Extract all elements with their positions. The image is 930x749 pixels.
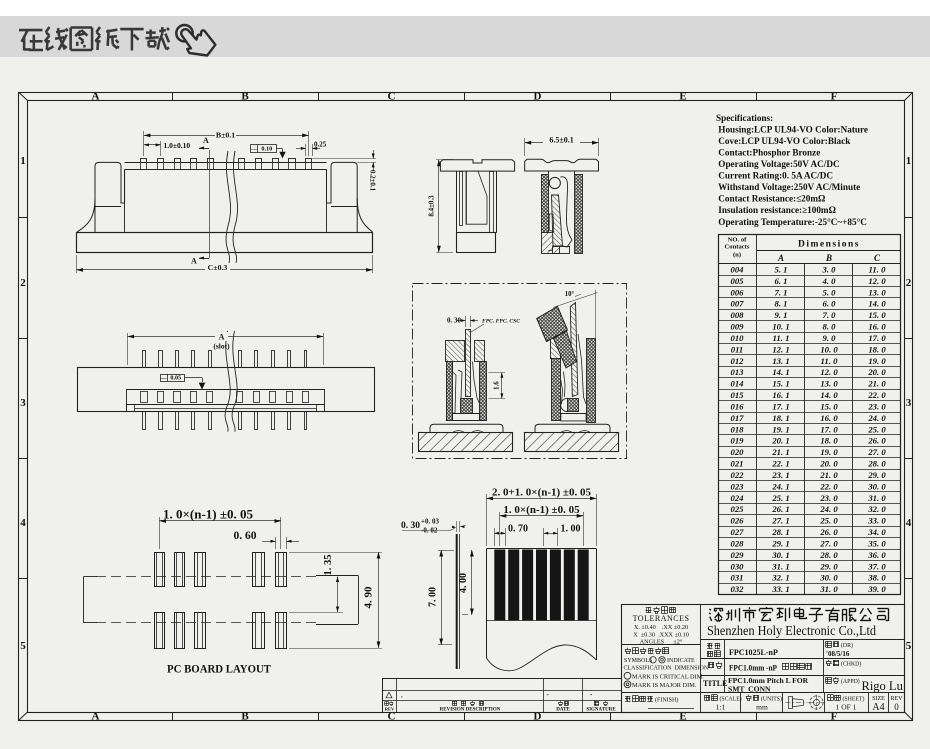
svg-text:8.4±0.3: 8.4±0.3 — [428, 195, 436, 217]
svg-text:21. 1: 21. 1 — [771, 447, 789, 457]
svg-text:MARK IS CRITICAL DIM.: MARK IS CRITICAL DIM. — [632, 674, 704, 681]
svg-text:6. 0: 6. 0 — [822, 299, 836, 309]
svg-text:—: — — [250, 147, 258, 153]
svg-text:016: 016 — [730, 401, 744, 411]
svg-text:22. 0: 22. 0 — [867, 390, 886, 400]
svg-text:4: 4 — [906, 517, 912, 529]
svg-text:27. 1: 27. 1 — [771, 516, 789, 526]
svg-text:(DR): (DR) — [841, 642, 853, 649]
svg-text:008: 008 — [730, 310, 744, 320]
svg-text:10. 1: 10. 1 — [772, 322, 789, 332]
svg-text:B: B — [241, 710, 249, 722]
svg-text:28. 0: 28. 0 — [867, 459, 886, 469]
svg-text:026: 026 — [730, 516, 744, 526]
svg-text:015: 015 — [730, 390, 744, 400]
svg-text:23. 1: 23. 1 — [771, 470, 789, 480]
svg-text:23. 0: 23. 0 — [819, 493, 838, 503]
svg-text:1 OF 1: 1 OF 1 — [836, 703, 857, 712]
svg-text:004: 004 — [730, 264, 744, 274]
svg-text:12. 0: 12. 0 — [820, 367, 838, 377]
svg-text:011: 011 — [731, 344, 744, 354]
svg-text:+0. 03: +0. 03 — [421, 518, 439, 526]
svg-text:19. 1: 19. 1 — [772, 424, 789, 434]
svg-text:029: 029 — [730, 550, 744, 560]
svg-text:5: 5 — [20, 640, 26, 652]
svg-text:14. 1: 14. 1 — [772, 367, 789, 377]
svg-text:18. 0: 18. 0 — [868, 344, 886, 354]
svg-text:19. 0: 19. 0 — [820, 447, 838, 457]
svg-text:15. 0: 15. 0 — [868, 310, 886, 320]
svg-text:3: 3 — [906, 397, 912, 409]
svg-text:17. 0: 17. 0 — [868, 333, 886, 343]
svg-text:(UNITS): (UNITS) — [761, 696, 782, 703]
svg-text:0: 0 — [894, 702, 899, 712]
svg-text:4. 90: 4. 90 — [363, 586, 375, 609]
svg-text:39. 0: 39. 0 — [867, 584, 886, 594]
svg-text:010: 010 — [730, 333, 744, 343]
svg-text:11. 0: 11. 0 — [869, 264, 887, 274]
svg-text:15. 0: 15. 0 — [820, 401, 838, 411]
svg-text:(n): (n) — [733, 252, 741, 259]
svg-text:28. 0: 28. 0 — [819, 550, 838, 560]
svg-text:1. 00: 1. 00 — [561, 524, 581, 535]
svg-text:Contact Resistance:≤20mΩ: Contact Resistance:≤20mΩ — [716, 194, 825, 204]
svg-text:5. 1: 5. 1 — [774, 264, 787, 274]
svg-text:4: 4 — [20, 517, 26, 529]
svg-text:24. 0: 24. 0 — [819, 504, 838, 514]
svg-text:10°: 10° — [565, 291, 575, 298]
svg-text:006: 006 — [730, 287, 744, 297]
svg-text:34. 0: 34. 0 — [867, 527, 886, 537]
svg-text:2: 2 — [20, 277, 26, 289]
svg-text:1. 35: 1. 35 — [323, 555, 334, 576]
svg-text:11. 1: 11. 1 — [773, 333, 790, 343]
svg-text:'08/5/16: '08/5/16 — [826, 650, 850, 658]
svg-text:3. 0: 3. 0 — [821, 264, 836, 274]
svg-text:20. 0: 20. 0 — [819, 459, 838, 469]
svg-text:Housing:LCP UL94-VO Color:Natu: Housing:LCP UL94-VO Color:Nature — [716, 124, 868, 134]
svg-text:8. 1: 8. 1 — [774, 299, 787, 309]
svg-text:17. 0: 17. 0 — [820, 424, 838, 434]
svg-text:25. 0: 25. 0 — [819, 516, 838, 526]
svg-text:11. 0: 11. 0 — [821, 356, 839, 366]
svg-text:1:1: 1:1 — [716, 703, 726, 712]
svg-text:1. 0×(n-1) ±0. 05: 1. 0×(n-1) ±0. 05 — [503, 504, 580, 516]
svg-text:36. 0: 36. 0 — [867, 550, 886, 560]
svg-text:Specifications:: Specifications: — [716, 113, 773, 123]
svg-text:22. 1: 22. 1 — [771, 459, 789, 469]
svg-text:24. 1: 24. 1 — [771, 481, 789, 491]
svg-text:9. 0: 9. 0 — [822, 333, 836, 343]
svg-text:2: 2 — [906, 277, 912, 289]
svg-text:0. 30: 0. 30 — [447, 317, 462, 325]
svg-text:13. 0: 13. 0 — [820, 379, 838, 389]
svg-text:37. 0: 37. 0 — [867, 561, 886, 571]
svg-text:014: 014 — [730, 379, 744, 389]
svg-text:18. 0: 18. 0 — [820, 436, 838, 446]
svg-text:032: 032 — [730, 584, 744, 594]
svg-text:A: A — [191, 257, 197, 266]
svg-text:Shenzhen Holy Electronic Co.,L: Shenzhen Holy Electronic Co.,Ltd — [707, 624, 876, 639]
svg-text:B: B — [241, 91, 249, 103]
svg-text:25. 0: 25. 0 — [867, 424, 886, 434]
svg-text:21. 0: 21. 0 — [819, 470, 838, 480]
svg-text:Contacts: Contacts — [725, 244, 750, 251]
svg-text:031: 031 — [730, 573, 743, 583]
svg-text:PC BOARD LAYOUT: PC BOARD LAYOUT — [167, 664, 271, 676]
svg-text:FPC1.0mm -nP: FPC1.0mm -nP — [729, 664, 777, 673]
svg-text:TITLE: TITLE — [703, 679, 727, 688]
svg-text:B±0.1: B±0.1 — [216, 131, 235, 140]
svg-text:12. 1: 12. 1 — [772, 344, 789, 354]
svg-text:30. 1: 30. 1 — [771, 550, 789, 560]
svg-text:A: A — [92, 91, 100, 103]
svg-text:20. 1: 20. 1 — [771, 436, 789, 446]
svg-text:9. 1: 9. 1 — [774, 310, 787, 320]
svg-text:14. 0: 14. 0 — [820, 390, 838, 400]
svg-text:022: 022 — [730, 470, 744, 480]
svg-text:31. 1: 31. 1 — [771, 561, 789, 571]
svg-text:0. 60: 0. 60 — [234, 530, 257, 542]
svg-text:F: F — [831, 91, 838, 103]
svg-text:009: 009 — [730, 322, 744, 332]
svg-text:7. 0: 7. 0 — [822, 310, 836, 320]
svg-text:6. 1: 6. 1 — [774, 276, 787, 286]
svg-text:—: — — [160, 376, 167, 382]
svg-text:0. 30: 0. 30 — [401, 521, 420, 531]
svg-text:23. 0: 23. 0 — [867, 401, 886, 411]
svg-text:(CHKD): (CHKD) — [841, 661, 861, 668]
svg-text:29. 0: 29. 0 — [819, 561, 838, 571]
svg-text:0.25: 0.25 — [314, 141, 327, 149]
svg-text:SYMBOLS: SYMBOLS — [624, 658, 652, 664]
svg-text:5: 5 — [906, 640, 912, 652]
svg-text:18. 1: 18. 1 — [772, 413, 789, 423]
svg-text:C: C — [388, 91, 396, 103]
svg-text:24. 0: 24. 0 — [867, 413, 886, 423]
svg-text:017: 017 — [730, 413, 744, 423]
svg-text:5. 0: 5. 0 — [822, 287, 836, 297]
svg-text:2. 0+1. 0×(n-1) ±0. 05: 2. 0+1. 0×(n-1) ±0. 05 — [492, 487, 591, 499]
svg-text:26. 0: 26. 0 — [867, 436, 886, 446]
svg-text:012: 012 — [730, 356, 744, 366]
svg-text:35. 0: 35. 0 — [867, 538, 886, 548]
svg-text:38. 0: 38. 0 — [867, 573, 886, 583]
svg-text:1. 0×(n-1) ±0. 05: 1. 0×(n-1) ±0. 05 — [163, 507, 254, 522]
svg-text:.: . — [401, 692, 403, 700]
svg-text:(SCALE): (SCALE) — [720, 696, 742, 703]
svg-text:17. 1: 17. 1 — [772, 401, 789, 411]
svg-text:INDICATE: INDICATE — [667, 658, 695, 664]
svg-text:33. 1: 33. 1 — [771, 584, 789, 594]
svg-text:30. 0: 30. 0 — [819, 573, 838, 583]
svg-text:MARK IS MAJOR DIM.: MARK IS MAJOR DIM. — [632, 682, 697, 689]
svg-text:027: 027 — [730, 527, 744, 537]
svg-text:030: 030 — [730, 561, 744, 571]
svg-text:028: 028 — [730, 538, 744, 548]
svg-text:X ±0.30 .XXX ±0.10: X ±0.30 .XXX ±0.10 — [633, 632, 689, 639]
svg-text:6.5±0.1: 6.5±0.1 — [549, 136, 573, 145]
svg-text:0.05: 0.05 — [170, 375, 181, 382]
svg-text:3: 3 — [20, 397, 26, 409]
svg-text:C±0.3: C±0.3 — [208, 263, 228, 272]
svg-text:SIGNATURE: SIGNATURE — [586, 708, 616, 713]
svg-text:13. 1: 13. 1 — [772, 356, 789, 366]
svg-text:4. 00: 4. 00 — [458, 573, 469, 593]
svg-text:Insulation resistance:≥100mΩ: Insulation resistance:≥100mΩ — [716, 205, 836, 215]
svg-text:A: A — [203, 136, 209, 145]
svg-text:16. 1: 16. 1 — [772, 390, 789, 400]
svg-text:12. 0: 12. 0 — [868, 276, 886, 286]
svg-text:4. 0: 4. 0 — [821, 276, 836, 286]
svg-text:CLASSIFICATION DIMENSION: CLASSIFICATION DIMENSION — [624, 666, 709, 672]
svg-text:32. 1: 32. 1 — [771, 573, 789, 583]
svg-text:013: 013 — [730, 367, 744, 377]
svg-text:Operating Voltage:50V AC/DC: Operating Voltage:50V AC/DC — [716, 159, 840, 169]
svg-text:16. 0: 16. 0 — [820, 413, 838, 423]
svg-text:005: 005 — [730, 276, 744, 286]
svg-text:A4: A4 — [872, 702, 884, 713]
svg-text:31. 0: 31. 0 — [867, 493, 886, 503]
svg-text:1: 1 — [20, 155, 26, 167]
svg-text:19. 0: 19. 0 — [868, 356, 886, 366]
svg-text:15. 1: 15. 1 — [772, 379, 789, 389]
svg-text:A: A — [777, 253, 784, 263]
svg-text:020: 020 — [730, 447, 744, 457]
svg-text:A: A — [219, 332, 225, 341]
svg-text:018: 018 — [730, 424, 744, 434]
svg-text:REV: REV — [385, 706, 395, 711]
svg-text:14. 0: 14. 0 — [868, 299, 886, 309]
svg-text:29. 1: 29. 1 — [771, 538, 789, 548]
svg-text:0.10: 0.10 — [261, 146, 272, 153]
svg-text:1.0±0.10: 1.0±0.10 — [164, 141, 191, 150]
svg-text:(APPD): (APPD) — [841, 678, 860, 685]
svg-text:28. 1: 28. 1 — [771, 527, 789, 537]
svg-text:B: B — [825, 253, 832, 263]
svg-text:E: E — [679, 91, 686, 103]
svg-text:FPC. FPC. CSC: FPC. FPC. CSC — [482, 318, 520, 324]
svg-text:Current Rating:0. 5A AC/DC: Current Rating:0. 5A AC/DC — [716, 171, 833, 181]
svg-text:007: 007 — [730, 299, 744, 309]
svg-text:16. 0: 16. 0 — [868, 322, 886, 332]
svg-text:Dimensions: Dimensions — [798, 240, 860, 250]
svg-text:Operating Temperature:-25°C~+8: Operating Temperature:-25°C~+85°C — [716, 217, 867, 227]
svg-text:7. 00: 7. 00 — [427, 587, 438, 607]
svg-text:21. 0: 21. 0 — [867, 379, 886, 389]
svg-text:1: 1 — [906, 155, 912, 167]
svg-text:20. 0: 20. 0 — [867, 367, 886, 377]
svg-text:SMT CONN: SMT CONN — [728, 685, 771, 694]
svg-text:26. 0: 26. 0 — [819, 527, 838, 537]
svg-text:TOLERANCES: TOLERANCES — [633, 614, 690, 623]
svg-text:ANGLES ±2°: ANGLES ±2° — [640, 639, 683, 646]
svg-text:024: 024 — [730, 493, 744, 503]
svg-text:0.2±0.1: 0.2±0.1 — [368, 170, 376, 192]
svg-text:D: D — [534, 91, 542, 103]
svg-text:(slot): (slot) — [213, 342, 230, 351]
svg-text:32. 0: 32. 0 — [867, 504, 886, 514]
svg-text:Contact:Phosphor Bronze: Contact:Phosphor Bronze — [716, 147, 820, 157]
svg-text:0. 70: 0. 70 — [508, 524, 528, 535]
svg-text:mm: mm — [756, 703, 768, 712]
svg-text:Rigo Lu: Rigo Lu — [862, 679, 904, 693]
svg-text:C: C — [874, 253, 881, 263]
svg-text:30. 0: 30. 0 — [867, 481, 886, 491]
svg-text:29. 0: 29. 0 — [867, 470, 886, 480]
svg-text:27. 0: 27. 0 — [867, 447, 886, 457]
svg-text:8. 0: 8. 0 — [822, 322, 836, 332]
svg-text:33. 0: 33. 0 — [867, 516, 886, 526]
svg-text:(FINISH): (FINISH) — [655, 697, 678, 704]
svg-text:10. 0: 10. 0 — [820, 344, 838, 354]
svg-text:13. 0: 13. 0 — [868, 287, 886, 297]
svg-text:31. 0: 31. 0 — [819, 584, 838, 594]
svg-text:26. 1: 26. 1 — [771, 504, 789, 514]
svg-text:7. 1: 7. 1 — [774, 287, 787, 297]
svg-text:NO. of: NO. of — [728, 237, 747, 244]
svg-text:025: 025 — [730, 504, 744, 514]
svg-text:023: 023 — [730, 481, 744, 491]
svg-text:FPC1025L-nP: FPC1025L-nP — [729, 648, 778, 657]
svg-text:25. 1: 25. 1 — [771, 493, 789, 503]
svg-text:Cove:LCP UL94-VO Color:Black: Cove:LCP UL94-VO Color:Black — [716, 136, 851, 146]
svg-text:(SHEET): (SHEET) — [843, 696, 865, 703]
svg-text:021: 021 — [730, 459, 743, 469]
svg-text:DATE: DATE — [556, 708, 570, 713]
svg-text:27. 0: 27. 0 — [819, 538, 838, 548]
svg-text:A: A — [92, 710, 100, 722]
svg-text:019: 019 — [730, 436, 744, 446]
svg-text:REVISION DESCRIPTION: REVISION DESCRIPTION — [440, 708, 501, 713]
svg-text:1.6: 1.6 — [494, 381, 501, 390]
svg-text:Withstand Voltage:250V AC/Minu: Withstand Voltage:250V AC/Minute — [716, 182, 860, 192]
svg-text:22. 0: 22. 0 — [819, 481, 838, 491]
svg-text:X. ±0.40 .XX ±0.20: X. ±0.40 .XX ±0.20 — [634, 624, 688, 631]
